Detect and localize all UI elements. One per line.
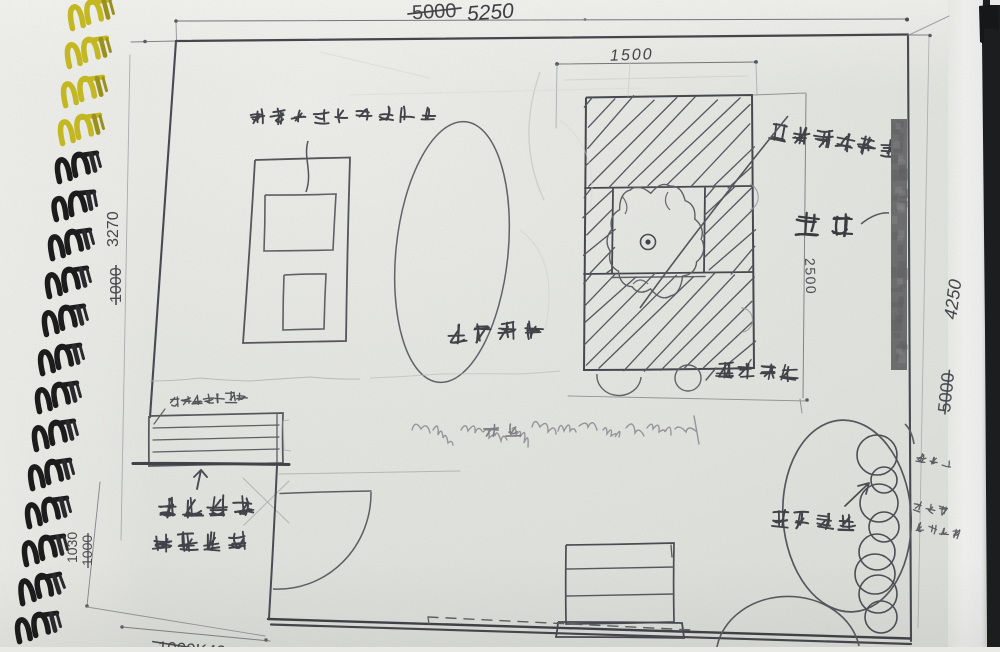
svg-text:1500: 1500 [610,46,654,65]
svg-text:1030: 1030 [64,532,80,563]
svg-text:3270: 3270 [105,211,122,247]
svg-text:5250: 5250 [466,0,515,26]
svg-text:1000: 1000 [79,535,95,566]
svg-text:2500: 2500 [802,258,819,296]
